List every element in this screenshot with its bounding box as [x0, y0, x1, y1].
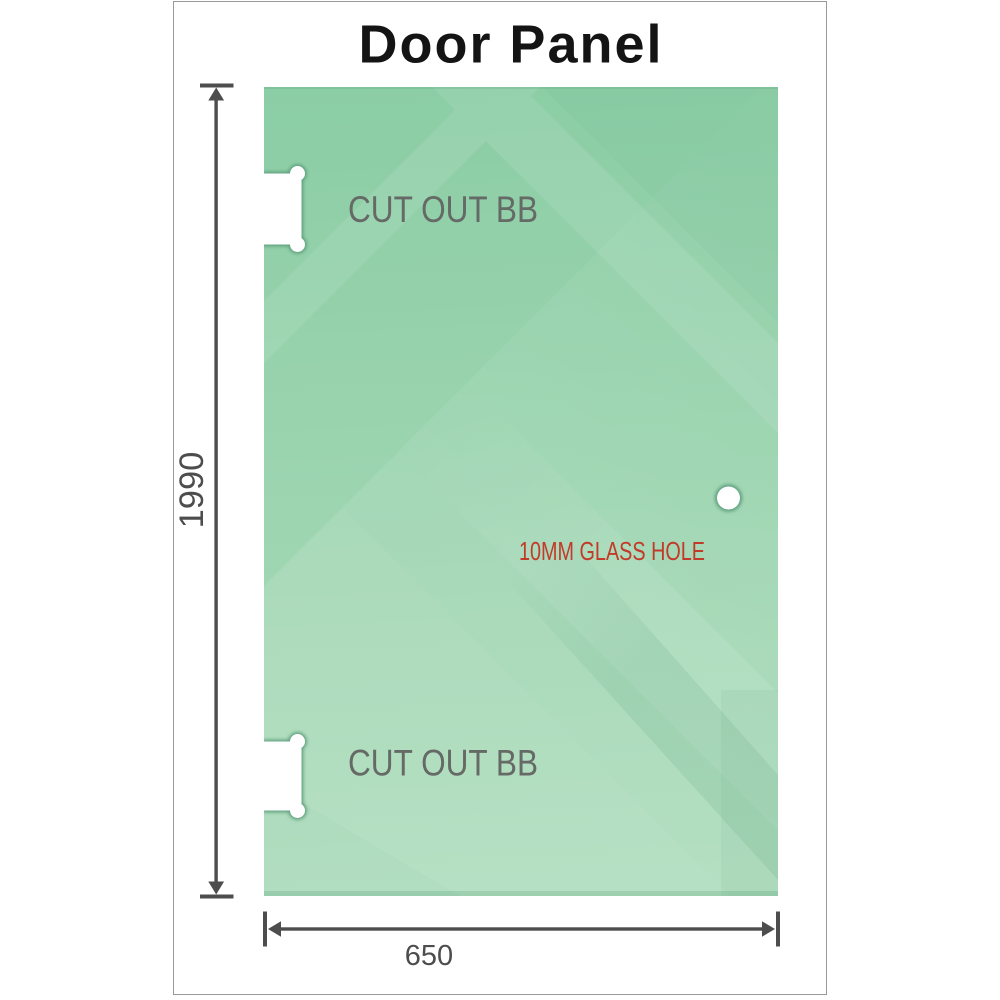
svg-text:CUT OUT BB: CUT OUT BB	[348, 743, 538, 784]
svg-text:1990: 1990	[173, 452, 211, 529]
svg-text:Door Panel: Door Panel	[359, 15, 662, 75]
svg-text:10MM GLASS HOLE: 10MM GLASS HOLE	[519, 536, 705, 566]
svg-text:CUT OUT BB: CUT OUT BB	[348, 189, 538, 230]
svg-text:650: 650	[405, 940, 453, 972]
